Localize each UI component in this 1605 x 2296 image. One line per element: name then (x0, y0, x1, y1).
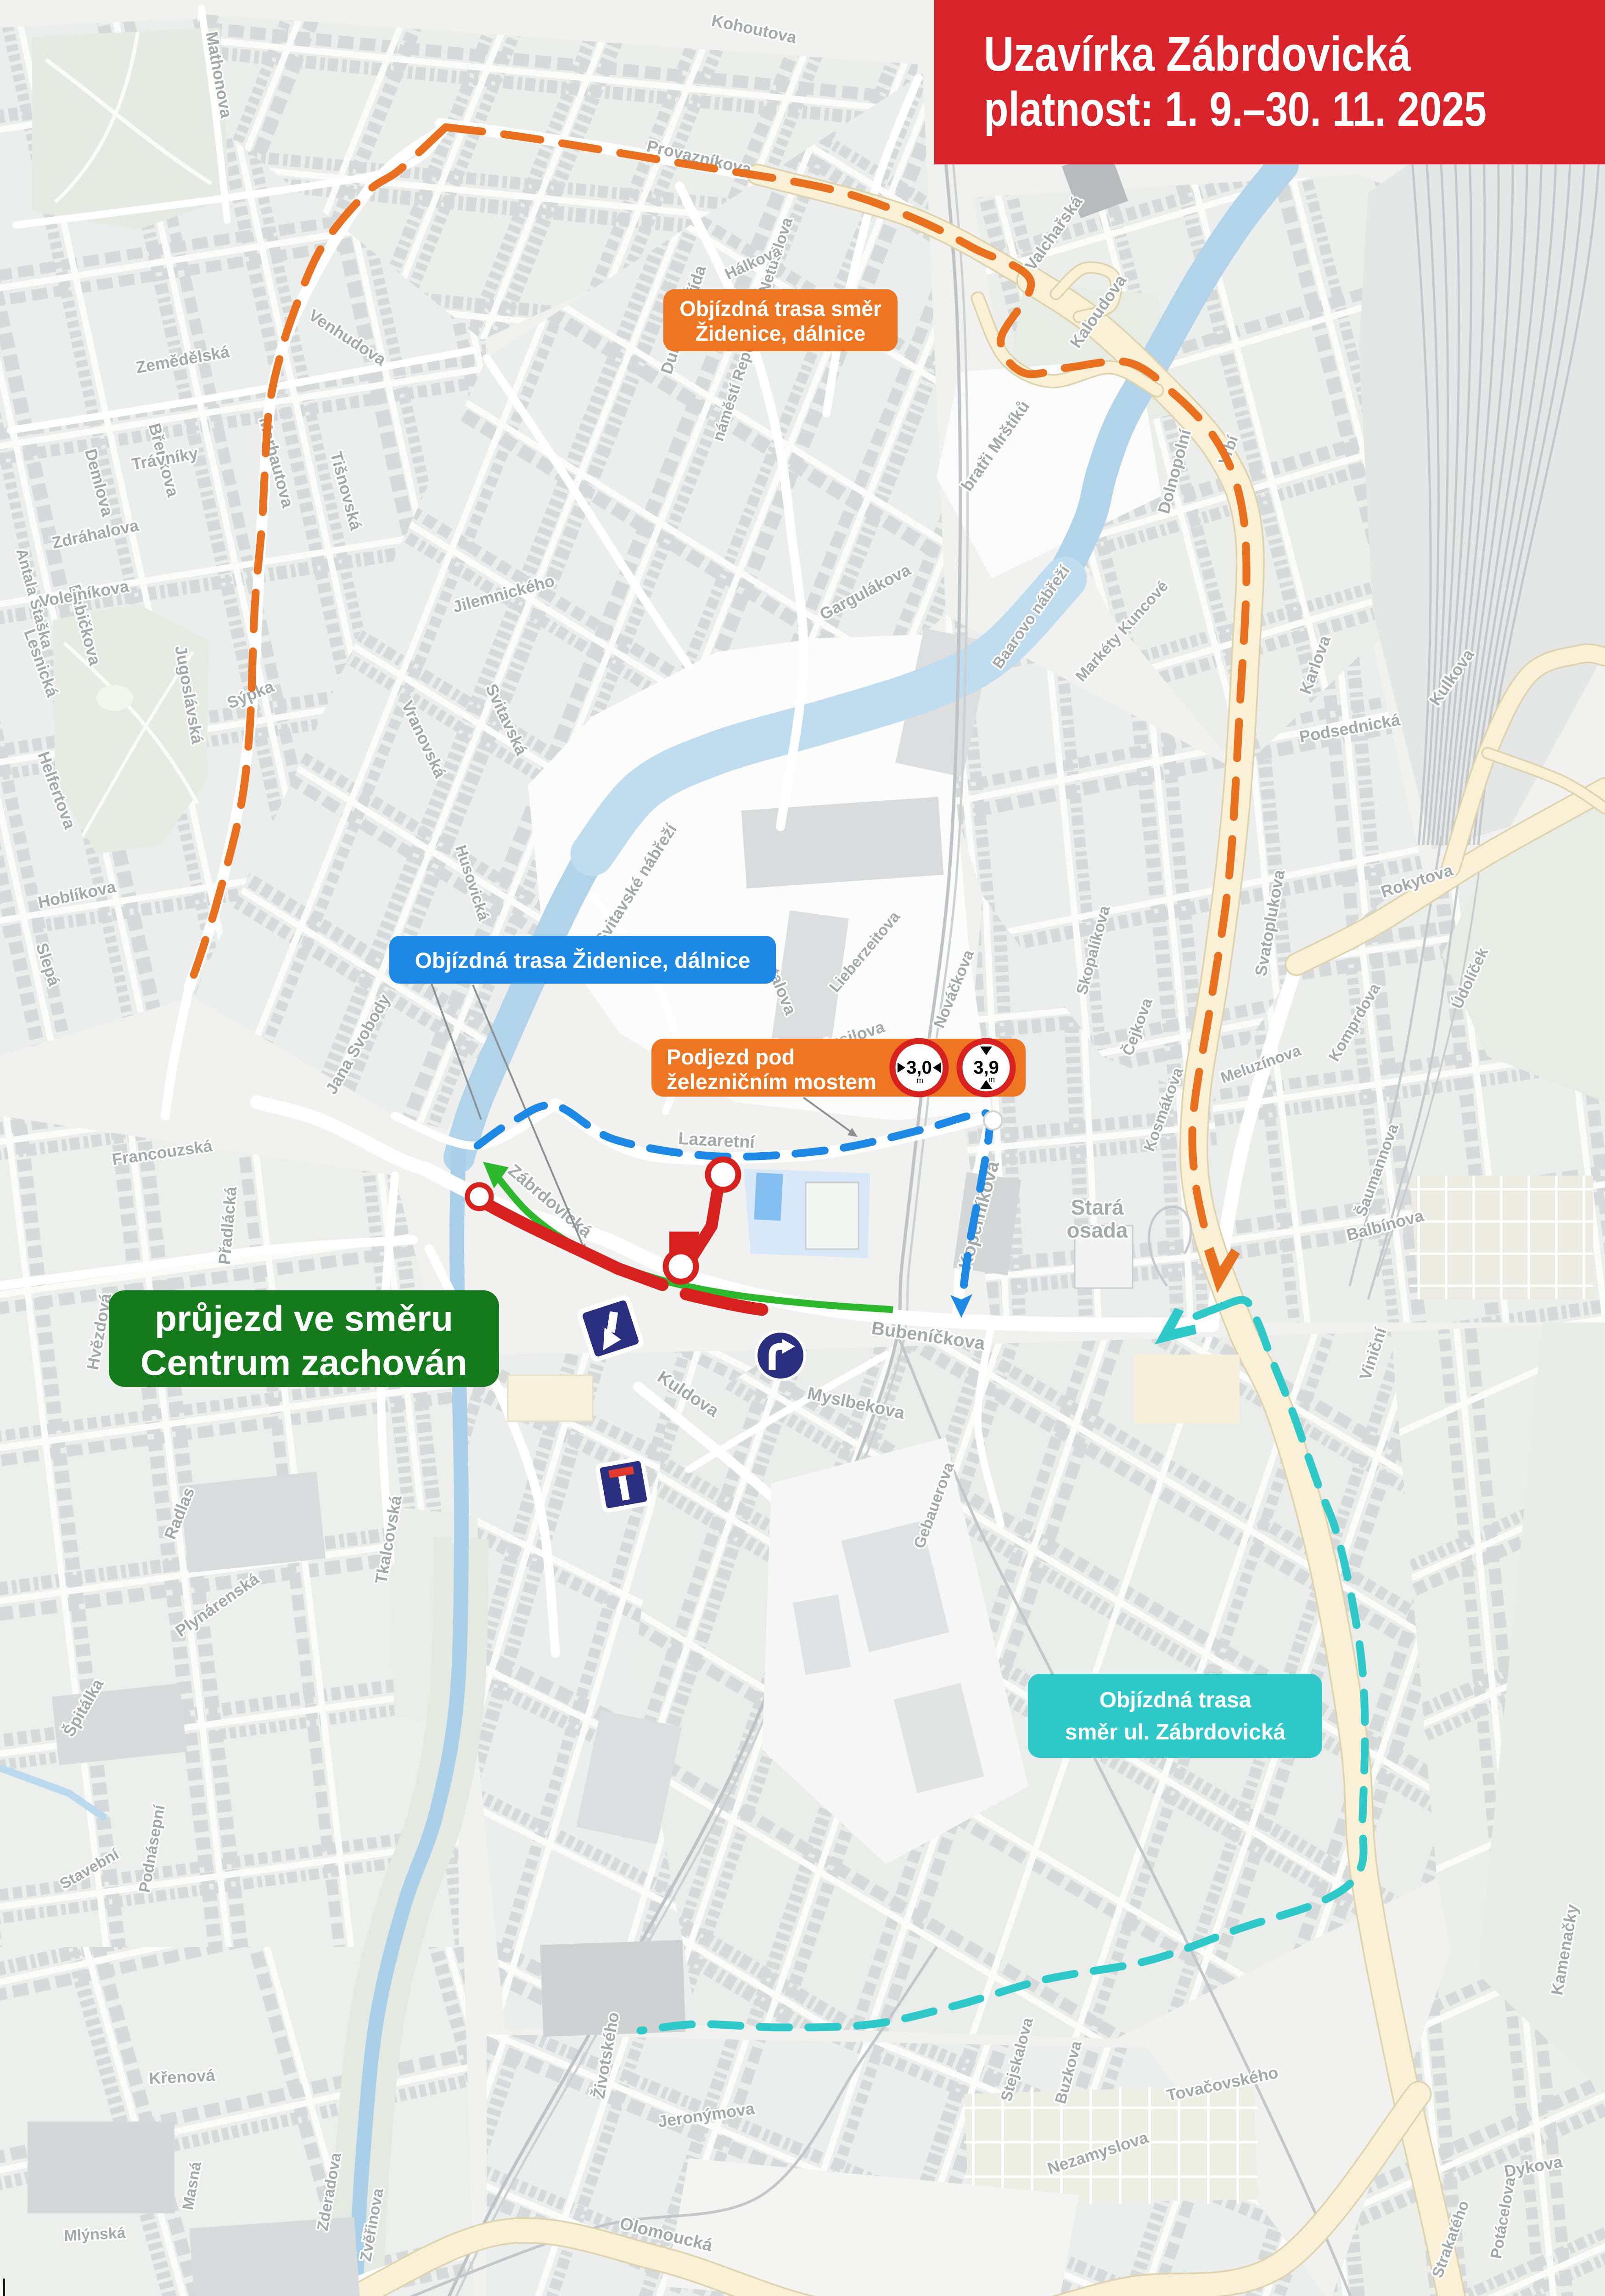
svg-text:Lazaretní: Lazaretní (678, 1129, 756, 1153)
svg-text:Podjezd pod: Podjezd pod (667, 1045, 795, 1069)
svg-text:osada: osada (1067, 1218, 1128, 1242)
svg-text:3,0: 3,0 (906, 1058, 932, 1078)
svg-text:Stará: Stará (1071, 1195, 1123, 1219)
svg-text:Centrum zachován: Centrum zachován (140, 1342, 467, 1383)
svg-text:Uzavírka Zábrdovická: Uzavírka Zábrdovická (984, 27, 1411, 81)
svg-text:Mlýnská: Mlýnská (63, 2224, 126, 2245)
svg-text:Objízdná trasa Židenice, dálni: Objízdná trasa Židenice, dálnice (415, 948, 751, 973)
svg-text:m: m (988, 1075, 995, 1084)
svg-text:Objízdná trasa: Objízdná trasa (1100, 1688, 1251, 1712)
svg-text:železničním mostem: železničním mostem (667, 1069, 876, 1094)
svg-text:3,9: 3,9 (973, 1058, 999, 1078)
svg-text:průjezd ve směru: průjezd ve směru (155, 1298, 453, 1339)
svg-text:Židenice, dálnice: Židenice, dálnice (696, 321, 866, 345)
svg-text:Křenová: Křenová (148, 2065, 216, 2088)
svg-text:m: m (917, 1076, 923, 1085)
svg-text:směr ul. Zábrdovická: směr ul. Zábrdovická (1065, 1720, 1285, 1745)
svg-text:platnost: 1. 9.–30. 11. 2025: platnost: 1. 9.–30. 11. 2025 (984, 82, 1487, 136)
svg-text:Objízdná trasa směr: Objízdná trasa směr (679, 297, 881, 321)
